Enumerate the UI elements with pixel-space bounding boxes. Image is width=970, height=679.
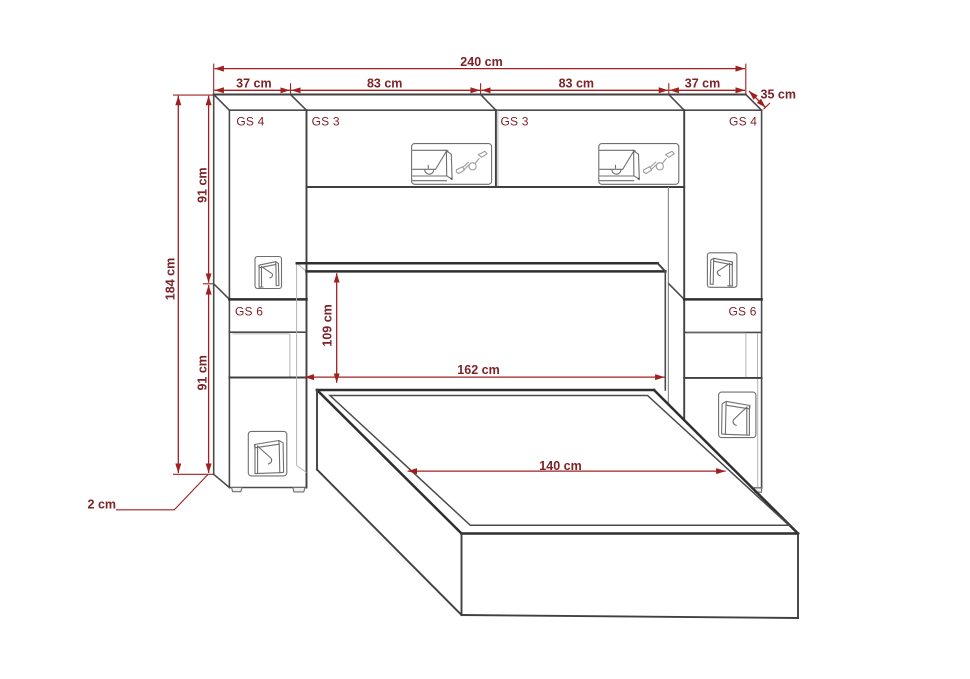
svg-text:GS 4: GS 4 bbox=[729, 114, 757, 128]
svg-text:GS 3: GS 3 bbox=[501, 114, 529, 128]
svg-text:240 cm: 240 cm bbox=[460, 55, 502, 69]
svg-text:2 cm: 2 cm bbox=[88, 498, 117, 512]
svg-text:162 cm: 162 cm bbox=[457, 363, 499, 377]
svg-text:109 cm: 109 cm bbox=[321, 304, 335, 346]
svg-text:184 cm: 184 cm bbox=[164, 258, 178, 300]
svg-text:37 cm: 37 cm bbox=[685, 76, 720, 90]
svg-text:91 cm: 91 cm bbox=[196, 167, 210, 202]
svg-text:83 cm: 83 cm bbox=[367, 76, 402, 90]
svg-text:GS 3: GS 3 bbox=[312, 115, 340, 129]
svg-text:140 cm: 140 cm bbox=[539, 459, 581, 473]
svg-text:GS 6: GS 6 bbox=[728, 305, 756, 319]
svg-text:91 cm: 91 cm bbox=[196, 355, 210, 390]
svg-text:GS 4: GS 4 bbox=[236, 115, 264, 129]
svg-text:83 cm: 83 cm bbox=[559, 76, 594, 90]
svg-text:GS 6: GS 6 bbox=[235, 305, 263, 319]
svg-text:37 cm: 37 cm bbox=[236, 76, 271, 90]
svg-text:35 cm: 35 cm bbox=[761, 87, 796, 101]
